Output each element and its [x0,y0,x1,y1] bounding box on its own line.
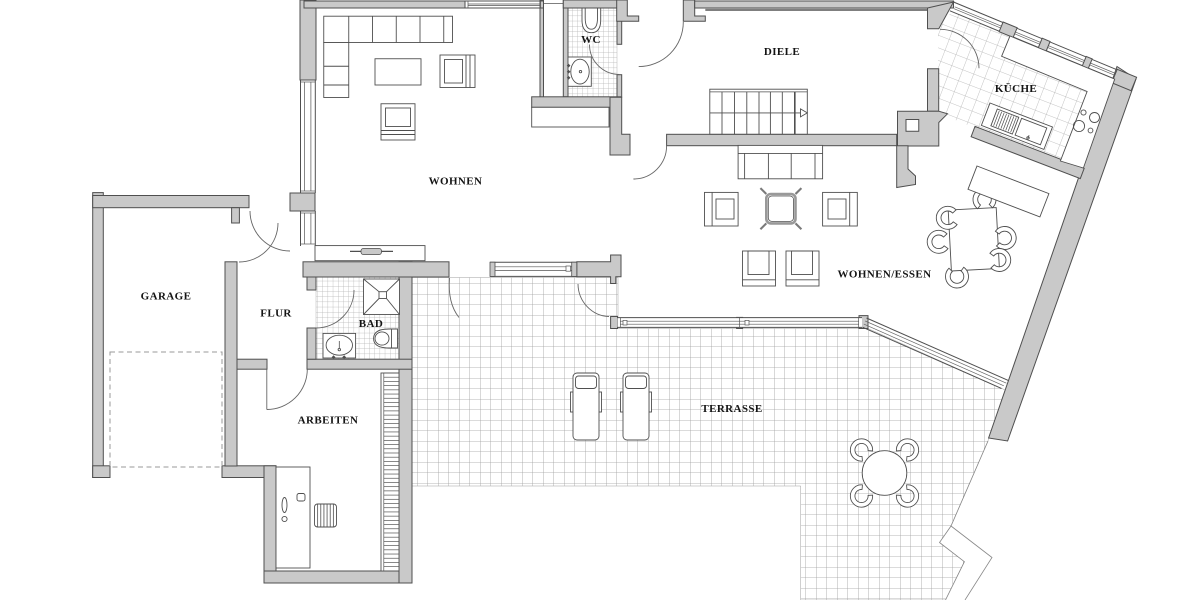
svg-text:WC: WC [581,34,601,46]
svg-text:KÜCHE: KÜCHE [995,82,1037,95]
svg-text:FLUR: FLUR [260,308,292,320]
svg-text:TERRASSE: TERRASSE [701,403,762,415]
svg-text:WOHNEN/ESSEN: WOHNEN/ESSEN [837,269,931,281]
svg-text:ARBEITEN: ARBEITEN [298,415,359,427]
svg-text:BAD: BAD [359,318,383,330]
svg-text:DIELE: DIELE [764,46,800,58]
svg-text:WOHNEN: WOHNEN [429,176,483,188]
svg-text:GARAGE: GARAGE [141,291,192,303]
